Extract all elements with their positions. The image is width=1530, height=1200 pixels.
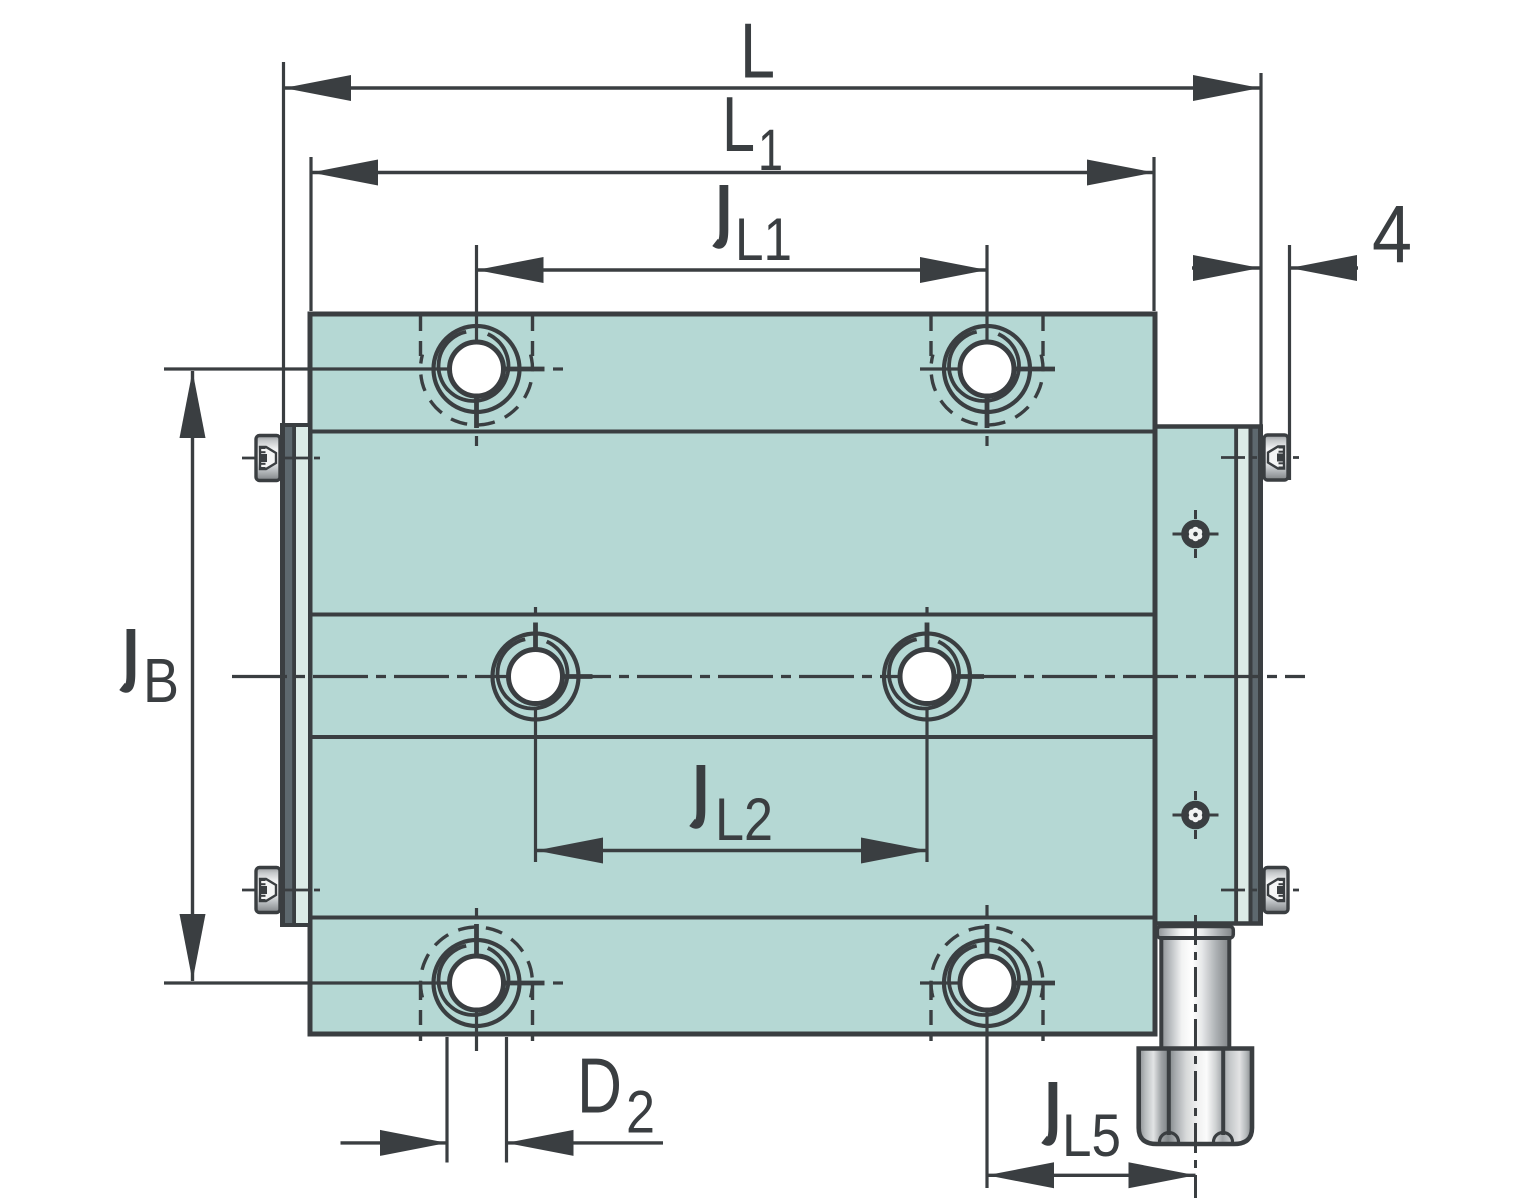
svg-text:D: D [577,1042,622,1130]
svg-text:L2: L2 [715,786,773,853]
svg-text:B: B [143,647,179,716]
svg-text:2: 2 [626,1079,655,1146]
svg-text:4: 4 [1372,189,1412,280]
svg-text:L1: L1 [735,206,792,273]
svg-text:L5: L5 [1062,1102,1121,1169]
svg-text:L: L [722,80,755,168]
svg-text:1: 1 [758,118,783,183]
